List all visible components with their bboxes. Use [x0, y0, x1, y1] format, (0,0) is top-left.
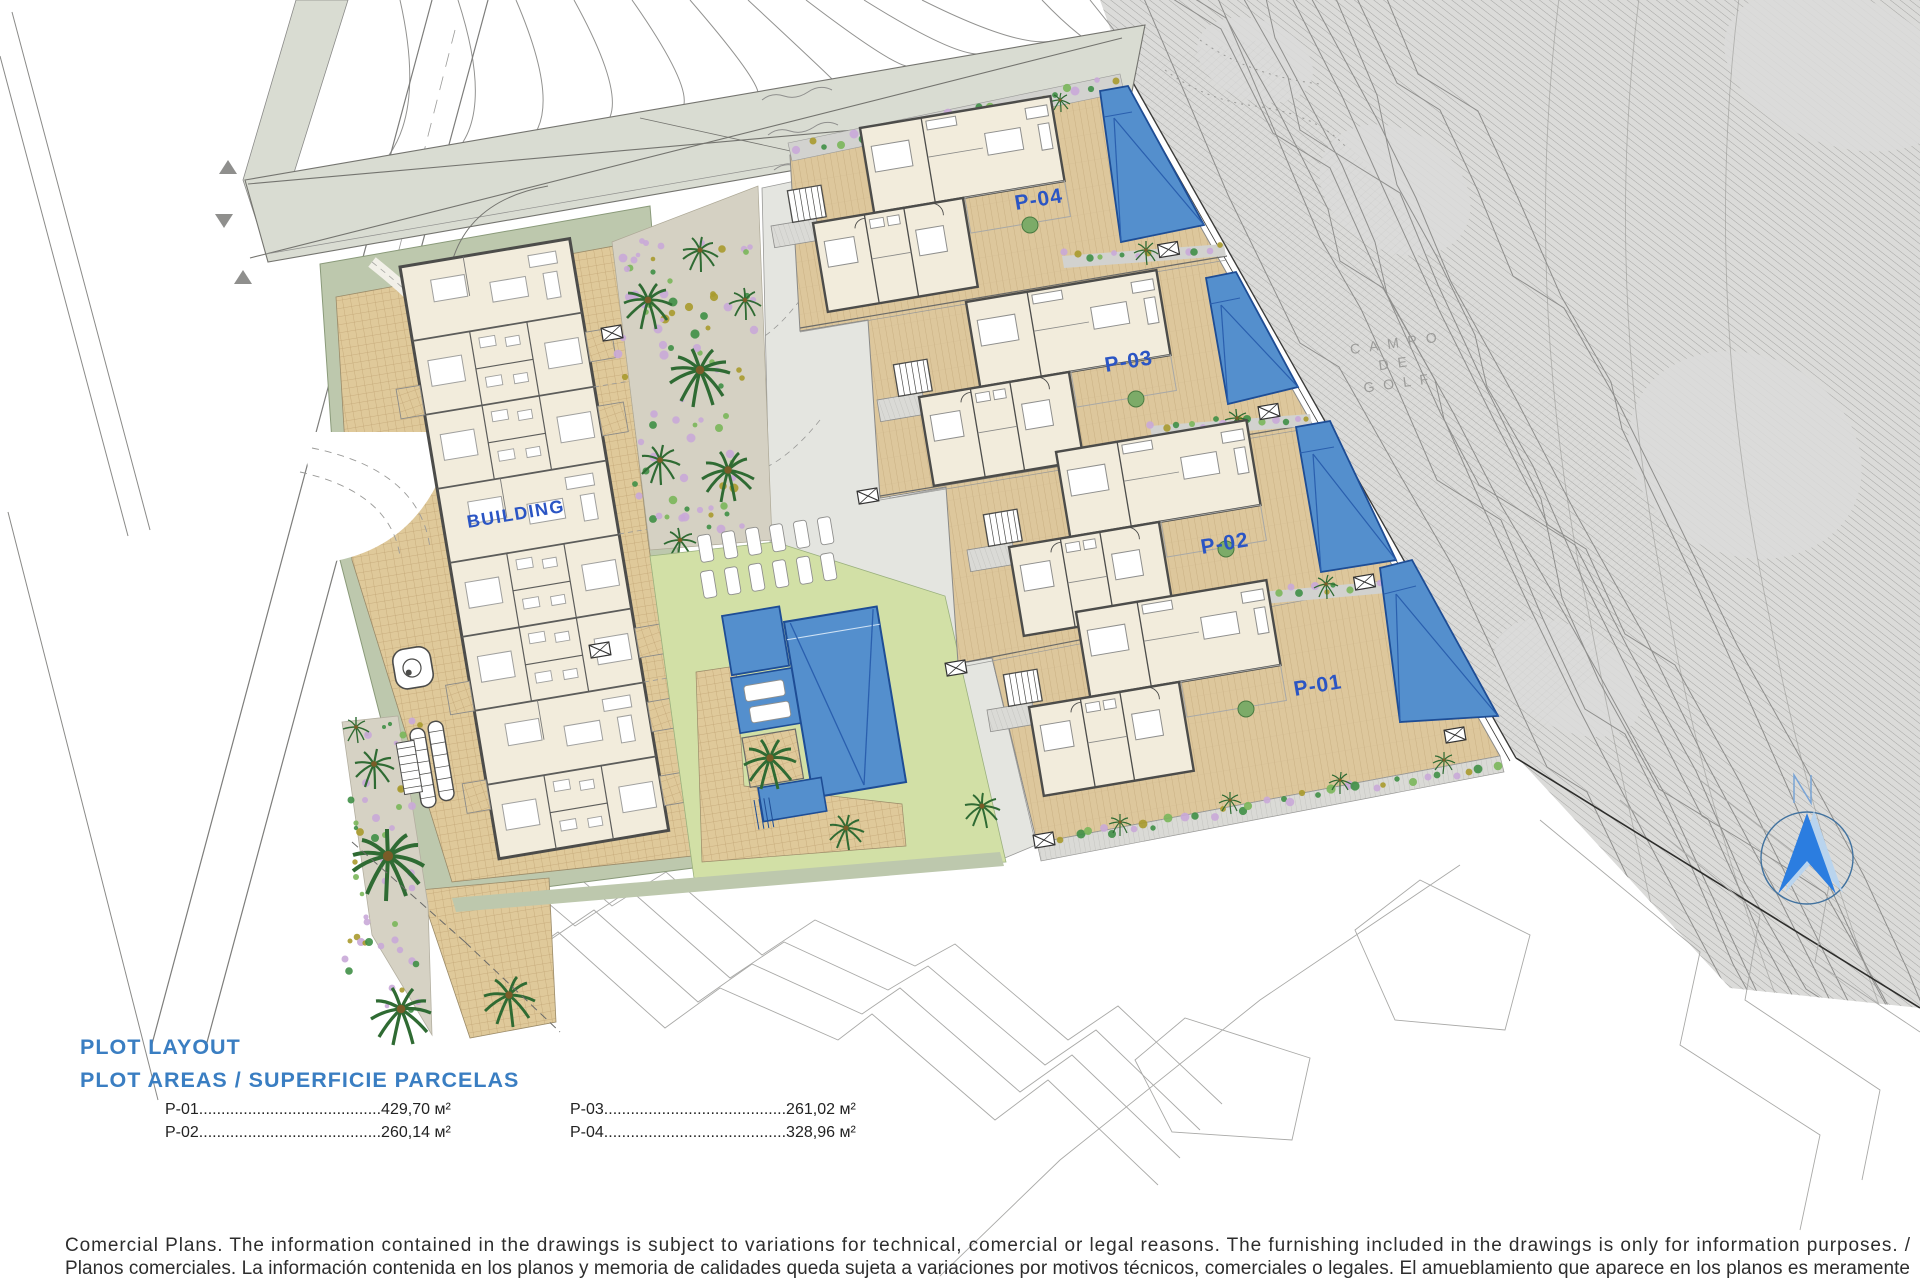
svg-text:PLOT LAYOUT: PLOT LAYOUT	[80, 1035, 241, 1059]
svg-text:P-01..........................: P-01....................................…	[165, 1101, 451, 1118]
svg-text:Comercial Plans. The informati: Comercial Plans. The information contain…	[65, 1235, 1911, 1256]
svg-text:Planos comerciales. La informa: Planos comerciales. La información conte…	[65, 1258, 1910, 1279]
svg-text:P-02..........................: P-02....................................…	[165, 1124, 451, 1141]
svg-text:P-04..........................: P-04....................................…	[570, 1124, 856, 1141]
svg-text:PLOT AREAS / SUPERFICIE PARCEL: PLOT AREAS / SUPERFICIE PARCELAS	[80, 1068, 519, 1092]
svg-text:P-03..........................: P-03....................................…	[570, 1101, 856, 1118]
